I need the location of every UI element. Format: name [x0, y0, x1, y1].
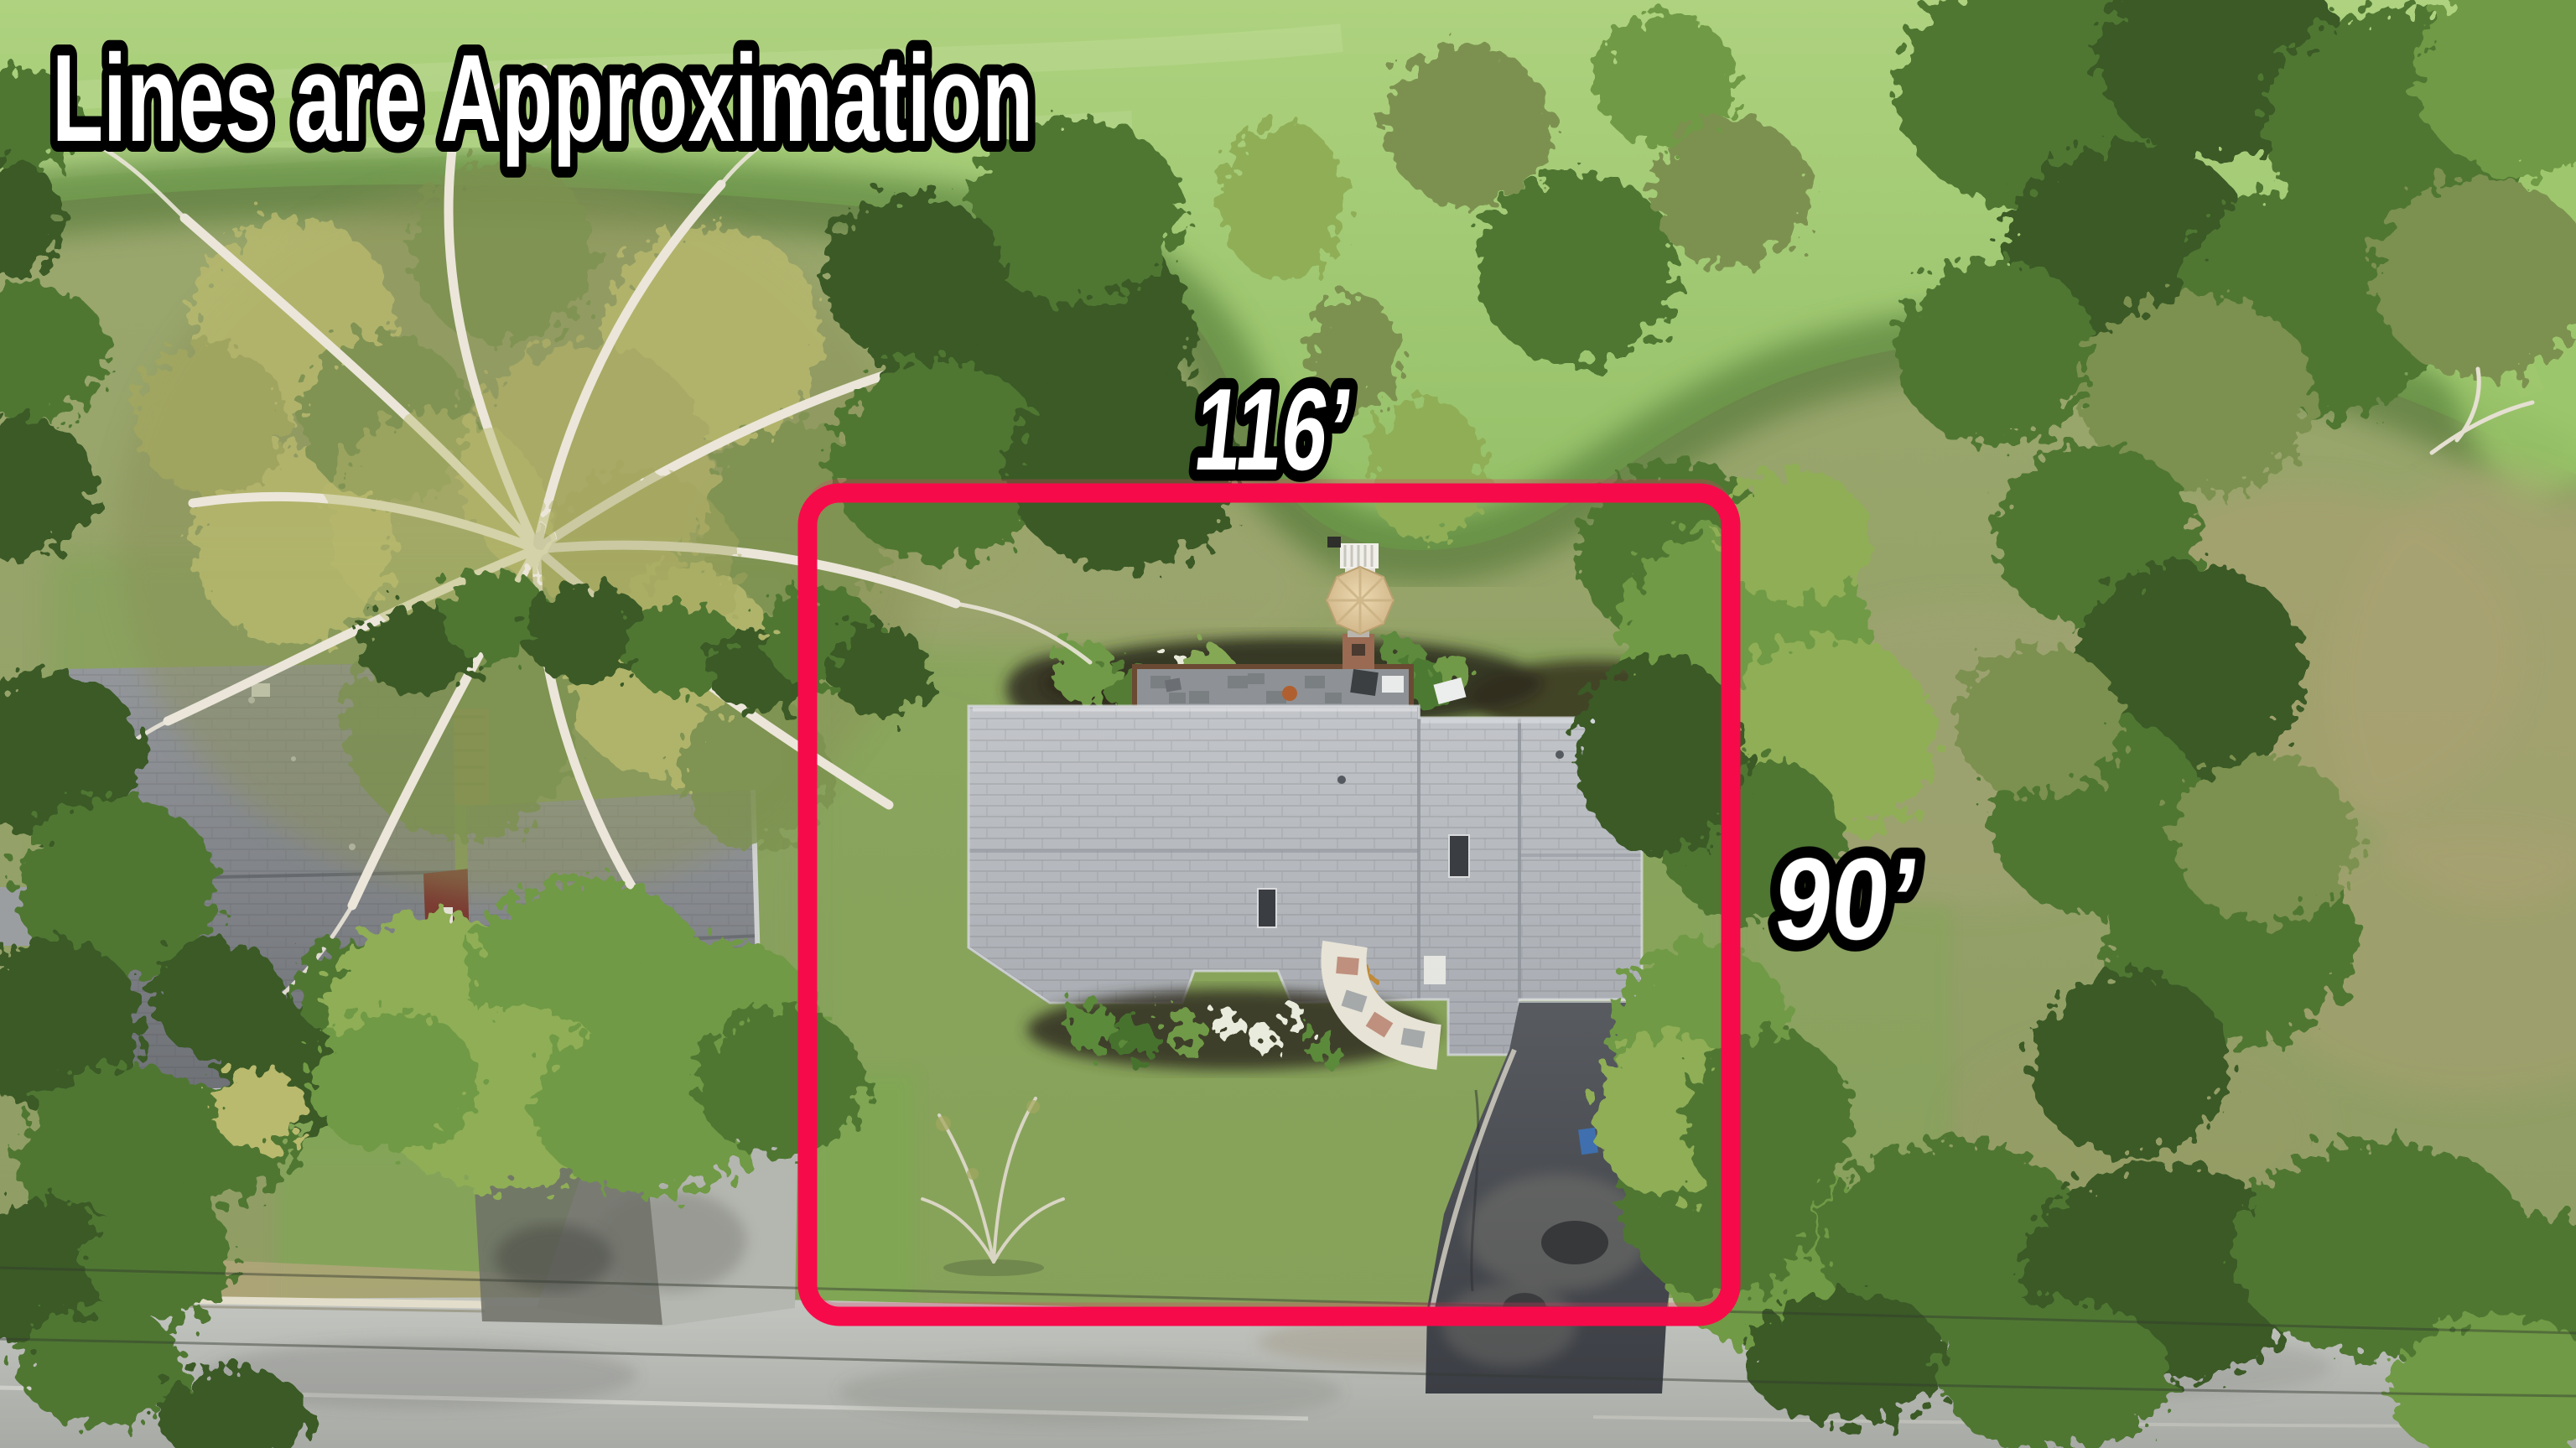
- cooler: [1382, 676, 1404, 693]
- top-dimension-label: 116’: [1189, 364, 1358, 495]
- side-dimension-label: 90’: [1768, 833, 1924, 964]
- patio-umbrella: [1327, 567, 1394, 634]
- roof-vent: [1555, 750, 1564, 759]
- patio: [1135, 667, 1411, 710]
- disclaimer-text: Lines are Approximation: [52, 29, 1033, 168]
- aerial-photo: Lines are Approximation 116’ 90’: [0, 0, 2576, 1448]
- grill: [1350, 669, 1379, 696]
- skylight: [1258, 889, 1276, 927]
- skylight: [1449, 835, 1469, 877]
- outdoor-fireplace: [1343, 631, 1374, 669]
- scene-canvas: Lines are Approximation 116’ 90’: [0, 0, 2576, 1448]
- front-stoop-railing: [1424, 956, 1446, 984]
- roof-vent: [1337, 776, 1346, 784]
- dark-object: [1327, 537, 1341, 548]
- flower-pot: [1282, 686, 1297, 701]
